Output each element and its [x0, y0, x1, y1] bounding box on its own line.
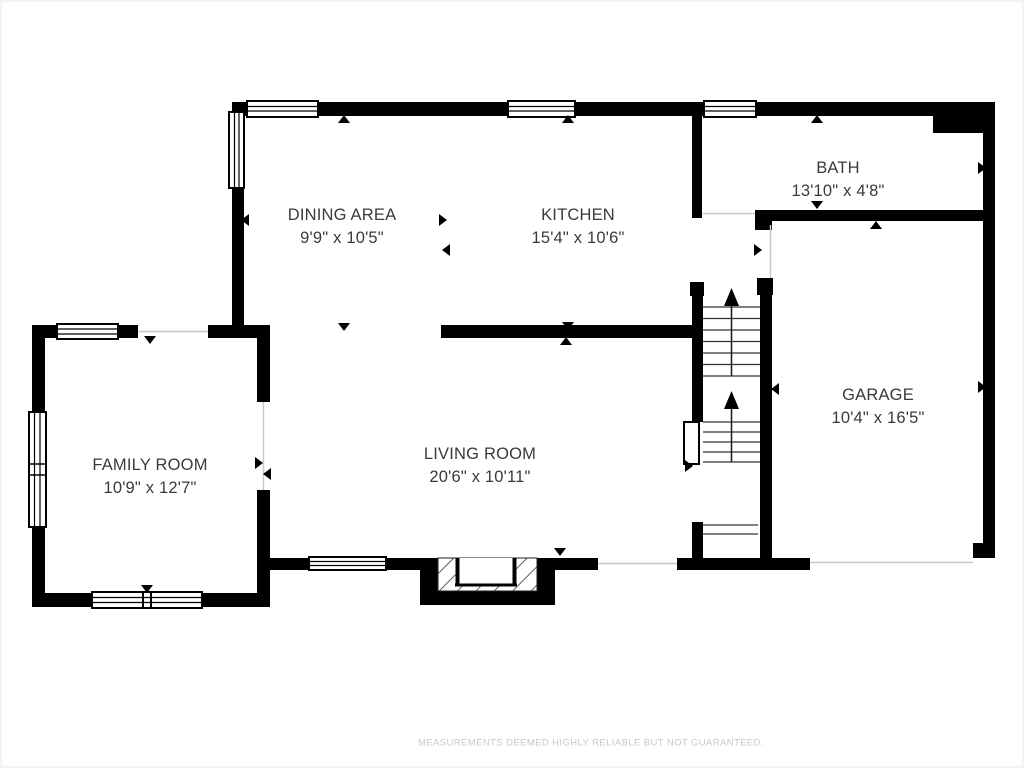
- room-label-garage: GARAGE 10'4" x 16'5": [831, 384, 924, 430]
- room-dimensions: 15'4" x 10'6": [531, 227, 624, 250]
- room-label-family-room: FAMILY ROOM 10'9" x 12'7": [92, 454, 207, 500]
- wall-bath-bottom: [755, 210, 995, 221]
- stair-direction-arrow-icon: [724, 288, 739, 462]
- wall-bath-corner: [755, 210, 772, 230]
- stairs-door-leaf: [684, 422, 699, 464]
- room-dimensions: 10'4" x 16'5": [831, 407, 924, 430]
- room-label-living-room: LIVING ROOM 20'6" x 10'11": [424, 443, 536, 489]
- wall-living-bottom-4: [677, 558, 810, 570]
- room-name: KITCHEN: [541, 206, 615, 224]
- room-dimensions: 20'6" x 10'11": [424, 466, 536, 489]
- fireplace-icon: [420, 558, 555, 605]
- room-name: GARAGE: [842, 386, 914, 404]
- wall-stairs-right: [760, 278, 772, 570]
- window-dining-top: [247, 101, 318, 117]
- wall-family-right-upper: [257, 338, 270, 402]
- wall-living-bottom-1: [257, 558, 310, 570]
- window-bath-top: [704, 101, 756, 117]
- window-family-left: [29, 412, 46, 527]
- wall-stairs-left-lower: [692, 522, 703, 558]
- window-family-bottom: [92, 592, 202, 608]
- wall-top: [232, 102, 995, 116]
- room-name: LIVING ROOM: [424, 445, 536, 463]
- room-name: DINING AREA: [288, 206, 397, 224]
- window-kitchen-top: [508, 101, 575, 117]
- window-dining-left: [229, 112, 244, 188]
- room-name: FAMILY ROOM: [92, 456, 207, 474]
- wall-right: [983, 102, 995, 558]
- wall-family-top-right: [208, 325, 270, 338]
- window-living-bottom: [309, 557, 386, 570]
- floor-plan-page: DINING AREA 9'9" x 10'5" KITCHEN 15'4" x…: [0, 0, 1024, 768]
- room-dimensions: 9'9" x 10'5": [288, 227, 397, 250]
- room-label-kitchen: KITCHEN 15'4" x 10'6": [531, 204, 624, 250]
- room-dimensions: 10'9" x 12'7": [92, 477, 207, 500]
- wall-living-bottom-2: [385, 558, 420, 570]
- room-name: BATH: [816, 159, 860, 177]
- wall-kitchen-living: [441, 325, 702, 338]
- measurements-disclaimer: MEASUREMENTS DEEMED HIGHLY RELIABLE BUT …: [418, 738, 764, 749]
- room-label-dining-area: DINING AREA 9'9" x 10'5": [288, 204, 397, 250]
- wall-stairs-left-upper: [692, 282, 703, 422]
- wall-family-right-lower: [257, 490, 270, 607]
- window-family-top: [57, 324, 118, 339]
- room-label-bath: BATH 13'10" x 4'8": [791, 157, 884, 203]
- room-dimensions: 13'10" x 4'8": [791, 180, 884, 203]
- wall-bath-divider: [692, 116, 702, 218]
- wall-right-stub: [973, 543, 995, 558]
- wall-living-bottom-3: [555, 558, 598, 570]
- windows: [29, 101, 756, 608]
